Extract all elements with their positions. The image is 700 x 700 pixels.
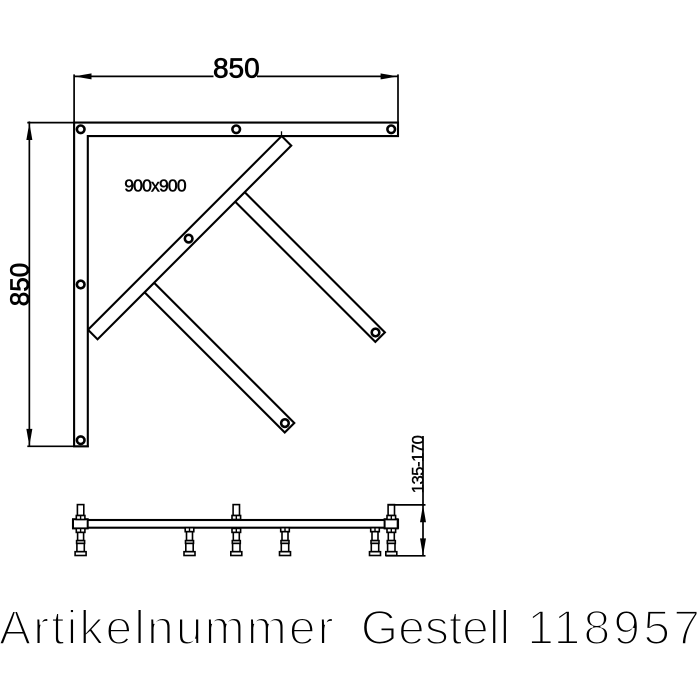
svg-text:850: 850: [5, 263, 35, 306]
svg-text:135-170: 135-170: [410, 435, 428, 493]
svg-text:Artikelnummer: Artikelnummer: [0, 602, 336, 655]
svg-text:900x900: 900x900: [124, 176, 187, 196]
svg-text:850: 850: [213, 52, 260, 83]
svg-text:118957: 118957: [527, 602, 700, 655]
svg-text:Gestell: Gestell: [361, 602, 510, 655]
